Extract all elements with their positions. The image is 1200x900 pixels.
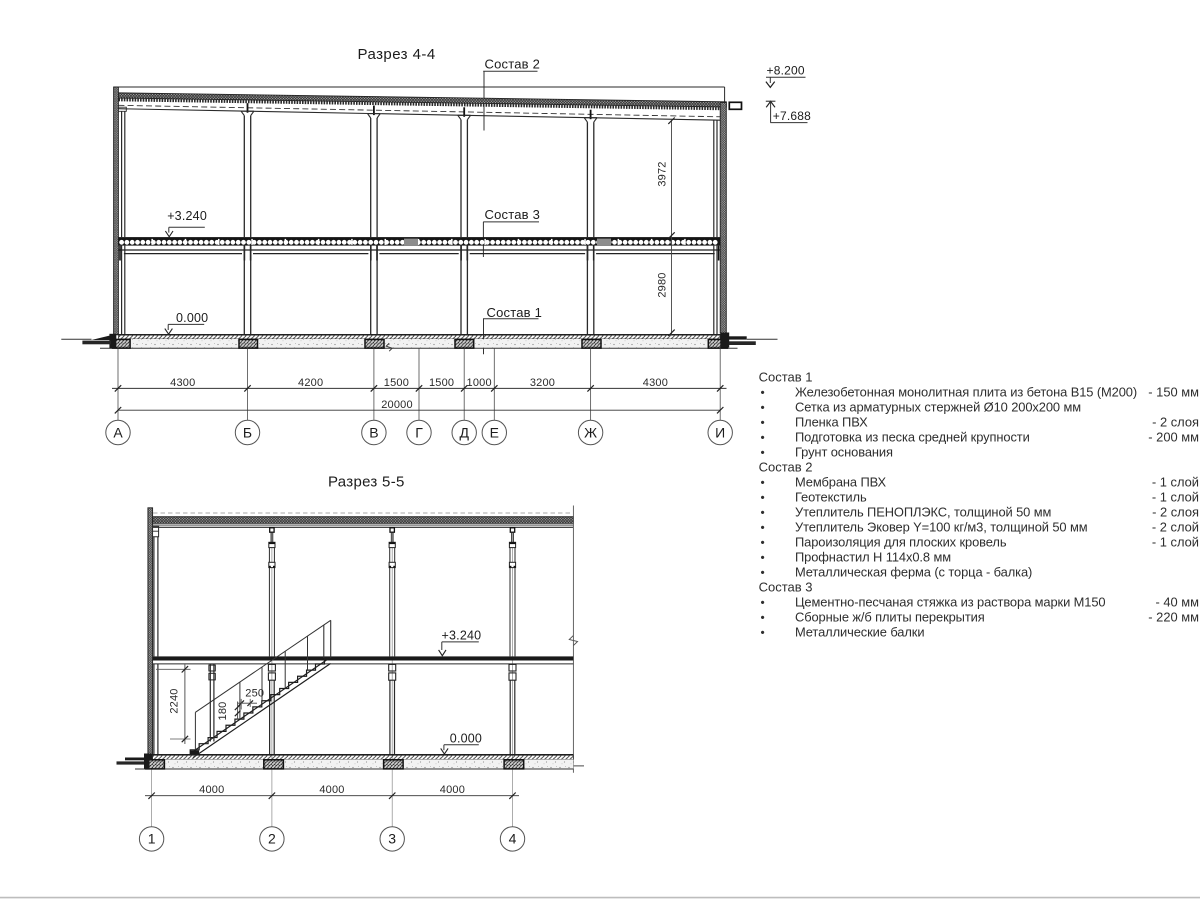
svg-text:•: • (761, 520, 765, 534)
svg-text:•: • (761, 550, 765, 564)
svg-text:Металлическая ферма (с торца -: Металлическая ферма (с торца - балка) (795, 564, 1032, 579)
svg-text:•: • (761, 625, 765, 639)
svg-text:- 1 слой: - 1 слой (1152, 474, 1199, 489)
svg-text:Грунт основания: Грунт основания (795, 444, 893, 459)
svg-text:Сетка из арматурных стержней Ø: Сетка из арматурных стержней Ø10 200х200… (795, 399, 1081, 414)
svg-text:4300: 4300 (643, 377, 668, 389)
svg-text:•: • (761, 505, 765, 519)
svg-text:Состав 3: Состав 3 (485, 207, 541, 222)
svg-text:3972: 3972 (656, 161, 668, 186)
svg-text:Состав 2: Состав 2 (759, 459, 813, 474)
svg-text:Геотекстиль: Геотекстиль (795, 489, 867, 504)
svg-text:+3.240: +3.240 (167, 209, 207, 223)
svg-text:Мембрана ПВХ: Мембрана ПВХ (795, 474, 887, 489)
svg-text:250: 250 (245, 688, 264, 700)
svg-text:4200: 4200 (298, 377, 323, 389)
svg-text:Профнастил Н 114х0.8 мм: Профнастил Н 114х0.8 мм (795, 549, 951, 564)
svg-text:1: 1 (148, 831, 156, 847)
svg-text:•: • (761, 565, 765, 579)
svg-text:4300: 4300 (170, 377, 195, 389)
svg-text:Состав 2: Состав 2 (485, 57, 541, 72)
svg-text:Состав 1: Состав 1 (759, 369, 813, 384)
svg-text:Состав 1: Состав 1 (487, 305, 543, 320)
svg-text:Железобетонная монолитная плит: Железобетонная монолитная плита из бетон… (795, 384, 1137, 399)
svg-text:- 40 мм: - 40 мм (1155, 594, 1199, 609)
svg-text:4000: 4000 (199, 784, 224, 796)
svg-text:- 2 слоя: - 2 слоя (1152, 414, 1199, 429)
svg-text:4000: 4000 (440, 784, 465, 796)
svg-text:+8.200: +8.200 (767, 64, 805, 78)
svg-text:- 150 мм: - 150 мм (1148, 384, 1199, 399)
svg-text:- 220 мм: - 220 мм (1148, 609, 1199, 624)
svg-text:Сборные ж/б плиты перекрытия: Сборные ж/б плиты перекрытия (795, 609, 985, 624)
svg-text:В: В (369, 424, 378, 440)
svg-text:•: • (761, 475, 765, 489)
svg-text:- 1 слой: - 1 слой (1152, 534, 1199, 549)
svg-text:Пароизоляция для плоских крове: Пароизоляция для плоских кровель (795, 534, 1007, 549)
svg-text:•: • (761, 385, 765, 399)
svg-text:2240: 2240 (169, 688, 181, 713)
svg-text:Г: Г (415, 424, 423, 440)
svg-text:1000: 1000 (467, 377, 492, 389)
svg-text:Подготовка из песка средней кр: Подготовка из песка средней крупности (795, 429, 1030, 444)
svg-text:1500: 1500 (384, 377, 409, 389)
svg-text:0.000: 0.000 (176, 311, 208, 325)
svg-text:•: • (761, 445, 765, 459)
svg-text:- 2 слой: - 2 слой (1152, 519, 1199, 534)
svg-text:Утеплитель Эковер Y=100 кг/м3,: Утеплитель Эковер Y=100 кг/м3, толщиной … (795, 519, 1088, 534)
svg-text:Е: Е (490, 424, 499, 440)
svg-text:•: • (761, 415, 765, 429)
svg-text:- 2 слоя: - 2 слоя (1152, 504, 1199, 519)
svg-text:- 200 мм: - 200 мм (1148, 429, 1199, 444)
svg-text:4: 4 (509, 831, 517, 847)
svg-text:- 1 слой: - 1 слой (1152, 489, 1199, 504)
svg-text:20000: 20000 (381, 399, 413, 411)
svg-text:И: И (715, 424, 725, 440)
svg-text:•: • (761, 535, 765, 549)
svg-text:Металлические балки: Металлические балки (795, 624, 924, 639)
svg-text:+3.240: +3.240 (442, 628, 482, 642)
svg-text:•: • (761, 430, 765, 444)
svg-text:Ж: Ж (584, 424, 597, 440)
svg-text:Разрез 4-4: Разрез 4-4 (358, 46, 436, 63)
svg-text:•: • (761, 610, 765, 624)
svg-text:2: 2 (268, 831, 276, 847)
svg-text:2980: 2980 (656, 272, 668, 297)
svg-text:1500: 1500 (429, 377, 454, 389)
svg-text:0.000: 0.000 (450, 731, 482, 745)
svg-text:Состав 3: Состав 3 (759, 579, 813, 594)
svg-text:Пленка ПВХ: Пленка ПВХ (795, 414, 868, 429)
svg-text:Утеплитель ПЕНОПЛЭКС, толщиной: Утеплитель ПЕНОПЛЭКС, толщиной 50 мм (795, 504, 1051, 519)
svg-text:Б: Б (243, 424, 252, 440)
svg-text:Д: Д (459, 424, 469, 440)
svg-text:Цементно-песчаная стяжка из ра: Цементно-песчаная стяжка из раствора мар… (795, 594, 1106, 609)
svg-text:+7.688: +7.688 (773, 109, 811, 123)
svg-text:3200: 3200 (530, 377, 555, 389)
svg-text:А: А (113, 424, 123, 440)
svg-text:•: • (761, 400, 765, 414)
svg-text:3: 3 (388, 831, 396, 847)
svg-text:180: 180 (217, 702, 229, 721)
svg-text:•: • (761, 595, 765, 609)
svg-text:•: • (761, 490, 765, 504)
svg-text:4000: 4000 (319, 784, 344, 796)
svg-text:Разрез 5-5: Разрез 5-5 (328, 473, 405, 490)
